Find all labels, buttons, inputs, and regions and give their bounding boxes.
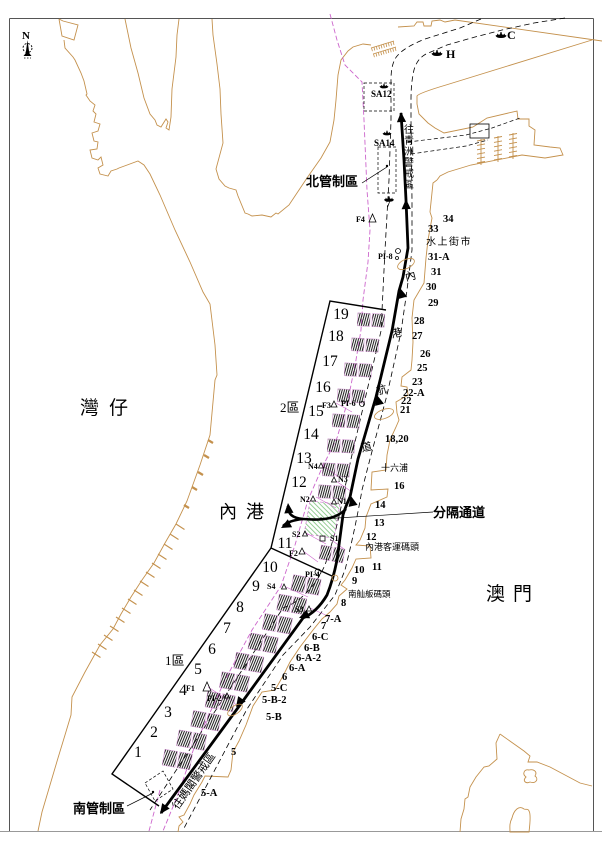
svg-text:14: 14: [303, 426, 319, 443]
svg-text:PI-4: PI-4: [305, 570, 320, 579]
svg-text:PI-6: PI-6: [341, 399, 356, 408]
svg-text:33: 33: [428, 224, 439, 235]
svg-text:14: 14: [375, 500, 386, 511]
svg-text:5: 5: [231, 747, 236, 758]
svg-text:十六浦: 十六浦: [381, 462, 408, 473]
svg-text:8: 8: [236, 599, 244, 616]
svg-text:6: 6: [282, 672, 287, 683]
svg-text:25: 25: [417, 363, 428, 374]
svg-text:N1: N1: [337, 497, 347, 506]
svg-text:內港: 內港: [219, 502, 273, 522]
svg-text:10: 10: [354, 565, 365, 576]
svg-text:南管制區: 南管制區: [73, 801, 125, 816]
svg-text:S1: S1: [330, 534, 338, 543]
svg-text:水上街市: 水上街市: [426, 235, 472, 248]
svg-text:8: 8: [341, 598, 346, 609]
svg-text:10: 10: [262, 559, 278, 576]
svg-text:澳門: 澳門: [486, 583, 540, 605]
svg-text:3: 3: [164, 704, 172, 721]
svg-text:SA12: SA12: [371, 89, 392, 99]
svg-text:內港客運碼頭: 內港客運碼頭: [365, 541, 419, 552]
svg-text:7: 7: [386, 199, 391, 209]
svg-text:2: 2: [150, 724, 158, 741]
svg-text:26: 26: [420, 349, 431, 360]
svg-text:27: 27: [412, 331, 423, 342]
svg-text:11: 11: [372, 562, 382, 573]
svg-text:F4: F4: [356, 215, 365, 224]
svg-text:C: C: [507, 28, 516, 42]
svg-text:23: 23: [412, 377, 423, 388]
svg-text:34: 34: [443, 214, 454, 225]
svg-text:5: 5: [194, 661, 202, 678]
svg-text:12: 12: [291, 474, 307, 491]
svg-text:N2: N2: [300, 495, 310, 504]
svg-text:9: 9: [352, 576, 357, 587]
svg-text:N4: N4: [308, 462, 318, 471]
svg-text:13: 13: [374, 518, 385, 529]
svg-text:9: 9: [252, 578, 260, 595]
svg-text:灣仔: 灣仔: [80, 397, 138, 419]
svg-text:19: 19: [333, 306, 349, 323]
svg-text:N3: N3: [338, 475, 348, 484]
svg-text:區: 區: [404, 179, 414, 191]
svg-text:5-B-2: 5-B-2: [262, 695, 287, 706]
svg-text:16: 16: [394, 481, 405, 492]
svg-text:17: 17: [322, 353, 338, 370]
svg-text:PI-2: PI-2: [207, 694, 222, 703]
svg-text:警: 警: [404, 156, 414, 169]
svg-text:16: 16: [315, 379, 331, 396]
svg-text:18: 18: [328, 328, 344, 345]
svg-text:PI-8: PI-8: [378, 252, 393, 261]
svg-text:S3: S3: [295, 605, 303, 614]
svg-text:6: 6: [208, 641, 216, 658]
svg-text:S2: S2: [292, 530, 300, 539]
svg-text:S4: S4: [267, 582, 275, 591]
svg-text:洲: 洲: [404, 146, 414, 158]
svg-text:戒: 戒: [404, 168, 414, 180]
svg-text:往: 往: [404, 123, 414, 136]
svg-text:北管制區: 北管制區: [306, 174, 358, 189]
svg-text:南舢舨碼頭: 南舢舨碼頭: [348, 589, 391, 599]
svg-text:21: 21: [400, 405, 411, 416]
svg-text:SA14: SA14: [374, 138, 395, 148]
svg-text:1區: 1區: [165, 653, 185, 668]
svg-text:7: 7: [223, 620, 231, 637]
svg-text:31: 31: [431, 267, 442, 278]
svg-text:F1: F1: [186, 684, 195, 693]
svg-text:7-A: 7-A: [325, 614, 342, 625]
svg-text:1: 1: [134, 744, 142, 761]
svg-text:F3: F3: [322, 401, 331, 410]
svg-text:N: N: [22, 30, 30, 42]
svg-text:5-A: 5-A: [201, 788, 218, 799]
svg-text:6-A: 6-A: [289, 663, 306, 674]
svg-text:分隔通道: 分隔通道: [433, 505, 485, 520]
svg-text:29: 29: [428, 298, 439, 309]
svg-text:6-C: 6-C: [312, 632, 328, 643]
svg-text:7: 7: [321, 621, 326, 632]
svg-text:H: H: [446, 47, 456, 61]
svg-text:青: 青: [404, 134, 414, 147]
svg-text:31-A: 31-A: [428, 252, 450, 263]
svg-text:5-C: 5-C: [271, 683, 287, 694]
svg-text:18,20: 18,20: [385, 434, 409, 445]
svg-text:28: 28: [414, 316, 425, 327]
svg-text:F2: F2: [289, 549, 298, 558]
svg-text:5-B: 5-B: [266, 712, 282, 723]
svg-text:2區: 2區: [280, 400, 300, 415]
svg-text:30: 30: [426, 282, 437, 293]
